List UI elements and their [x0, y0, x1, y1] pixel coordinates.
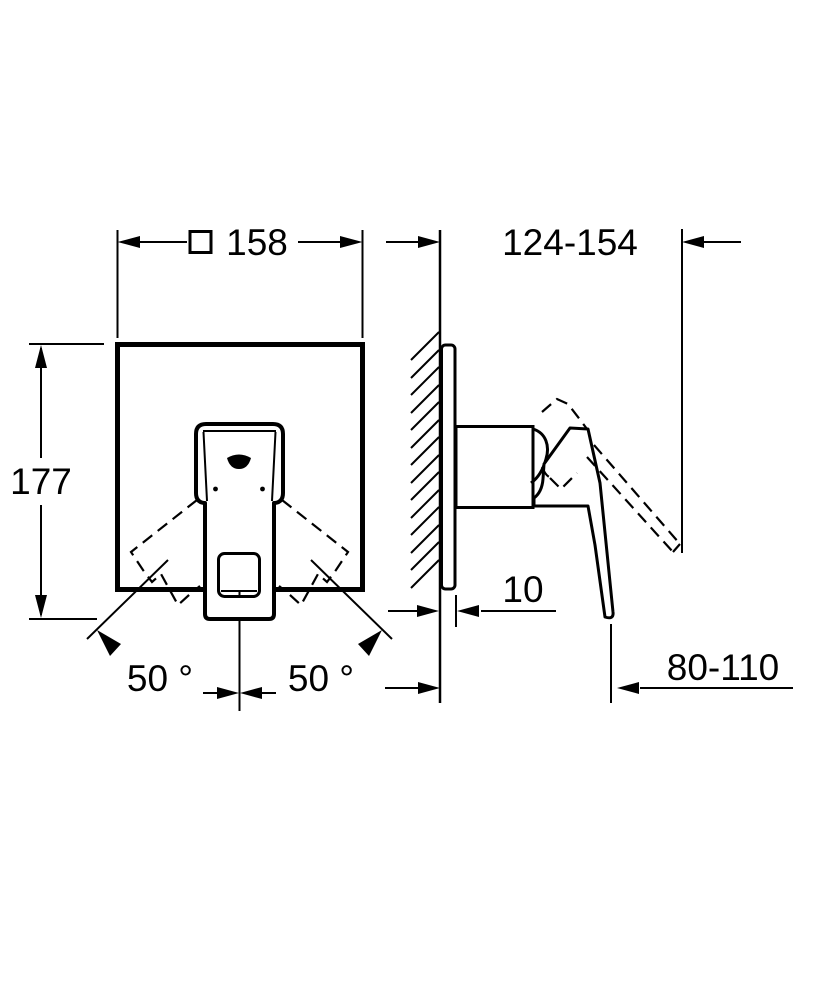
- side-view: 124-154 10 80-110: [385, 222, 793, 703]
- dimension-plate-width: 158: [118, 222, 363, 338]
- handle-dot-right: [260, 487, 265, 492]
- wall-hatch-pattern: [411, 332, 439, 588]
- arrowhead: [217, 687, 239, 699]
- dimension-handle-down-reach: 80-110: [385, 624, 793, 703]
- dimension-label-overall-height: 177: [10, 461, 72, 502]
- handle-dot-left: [213, 487, 218, 492]
- dimension-label-swing-left: 50 °: [127, 658, 193, 699]
- mixer-dimension-drawing: 158 177 50 ° 50 °: [0, 0, 834, 1000]
- technical-drawing-page: 158 177 50 ° 50 °: [0, 0, 834, 1000]
- dimension-label-plate-width: 158: [226, 222, 288, 263]
- arrowhead: [358, 630, 382, 656]
- escutcheon-side: [442, 345, 456, 589]
- arrowhead: [35, 595, 47, 618]
- arrowhead: [617, 682, 639, 694]
- front-view: 158 177 50 ° 50 °: [10, 222, 392, 711]
- square-symbol: [190, 232, 211, 253]
- arrowhead: [417, 605, 439, 617]
- dimension-overall-height: 177: [10, 344, 104, 619]
- arrowhead: [682, 236, 704, 248]
- dimension-label-handle-up-reach: 124-154: [502, 222, 638, 263]
- dimension-label-handle-down-reach: 80-110: [667, 647, 779, 688]
- arrowhead: [418, 682, 440, 694]
- mixer-body-side: [456, 427, 533, 508]
- dimension-label-swing-right: 50 °: [288, 658, 354, 699]
- dimension-swing-angles: 50 ° 50 °: [127, 621, 354, 711]
- arrowhead: [97, 630, 121, 656]
- dimension-plate-depth: 10: [388, 569, 556, 627]
- arrowhead: [457, 605, 479, 617]
- dimension-label-plate-depth: 10: [502, 569, 543, 610]
- arrowhead: [35, 345, 47, 368]
- arrowhead: [118, 236, 141, 248]
- arrowhead: [418, 236, 440, 248]
- lever-handle-side-up-head: [542, 399, 587, 429]
- arrowhead: [240, 687, 262, 699]
- arrowhead: [340, 236, 363, 248]
